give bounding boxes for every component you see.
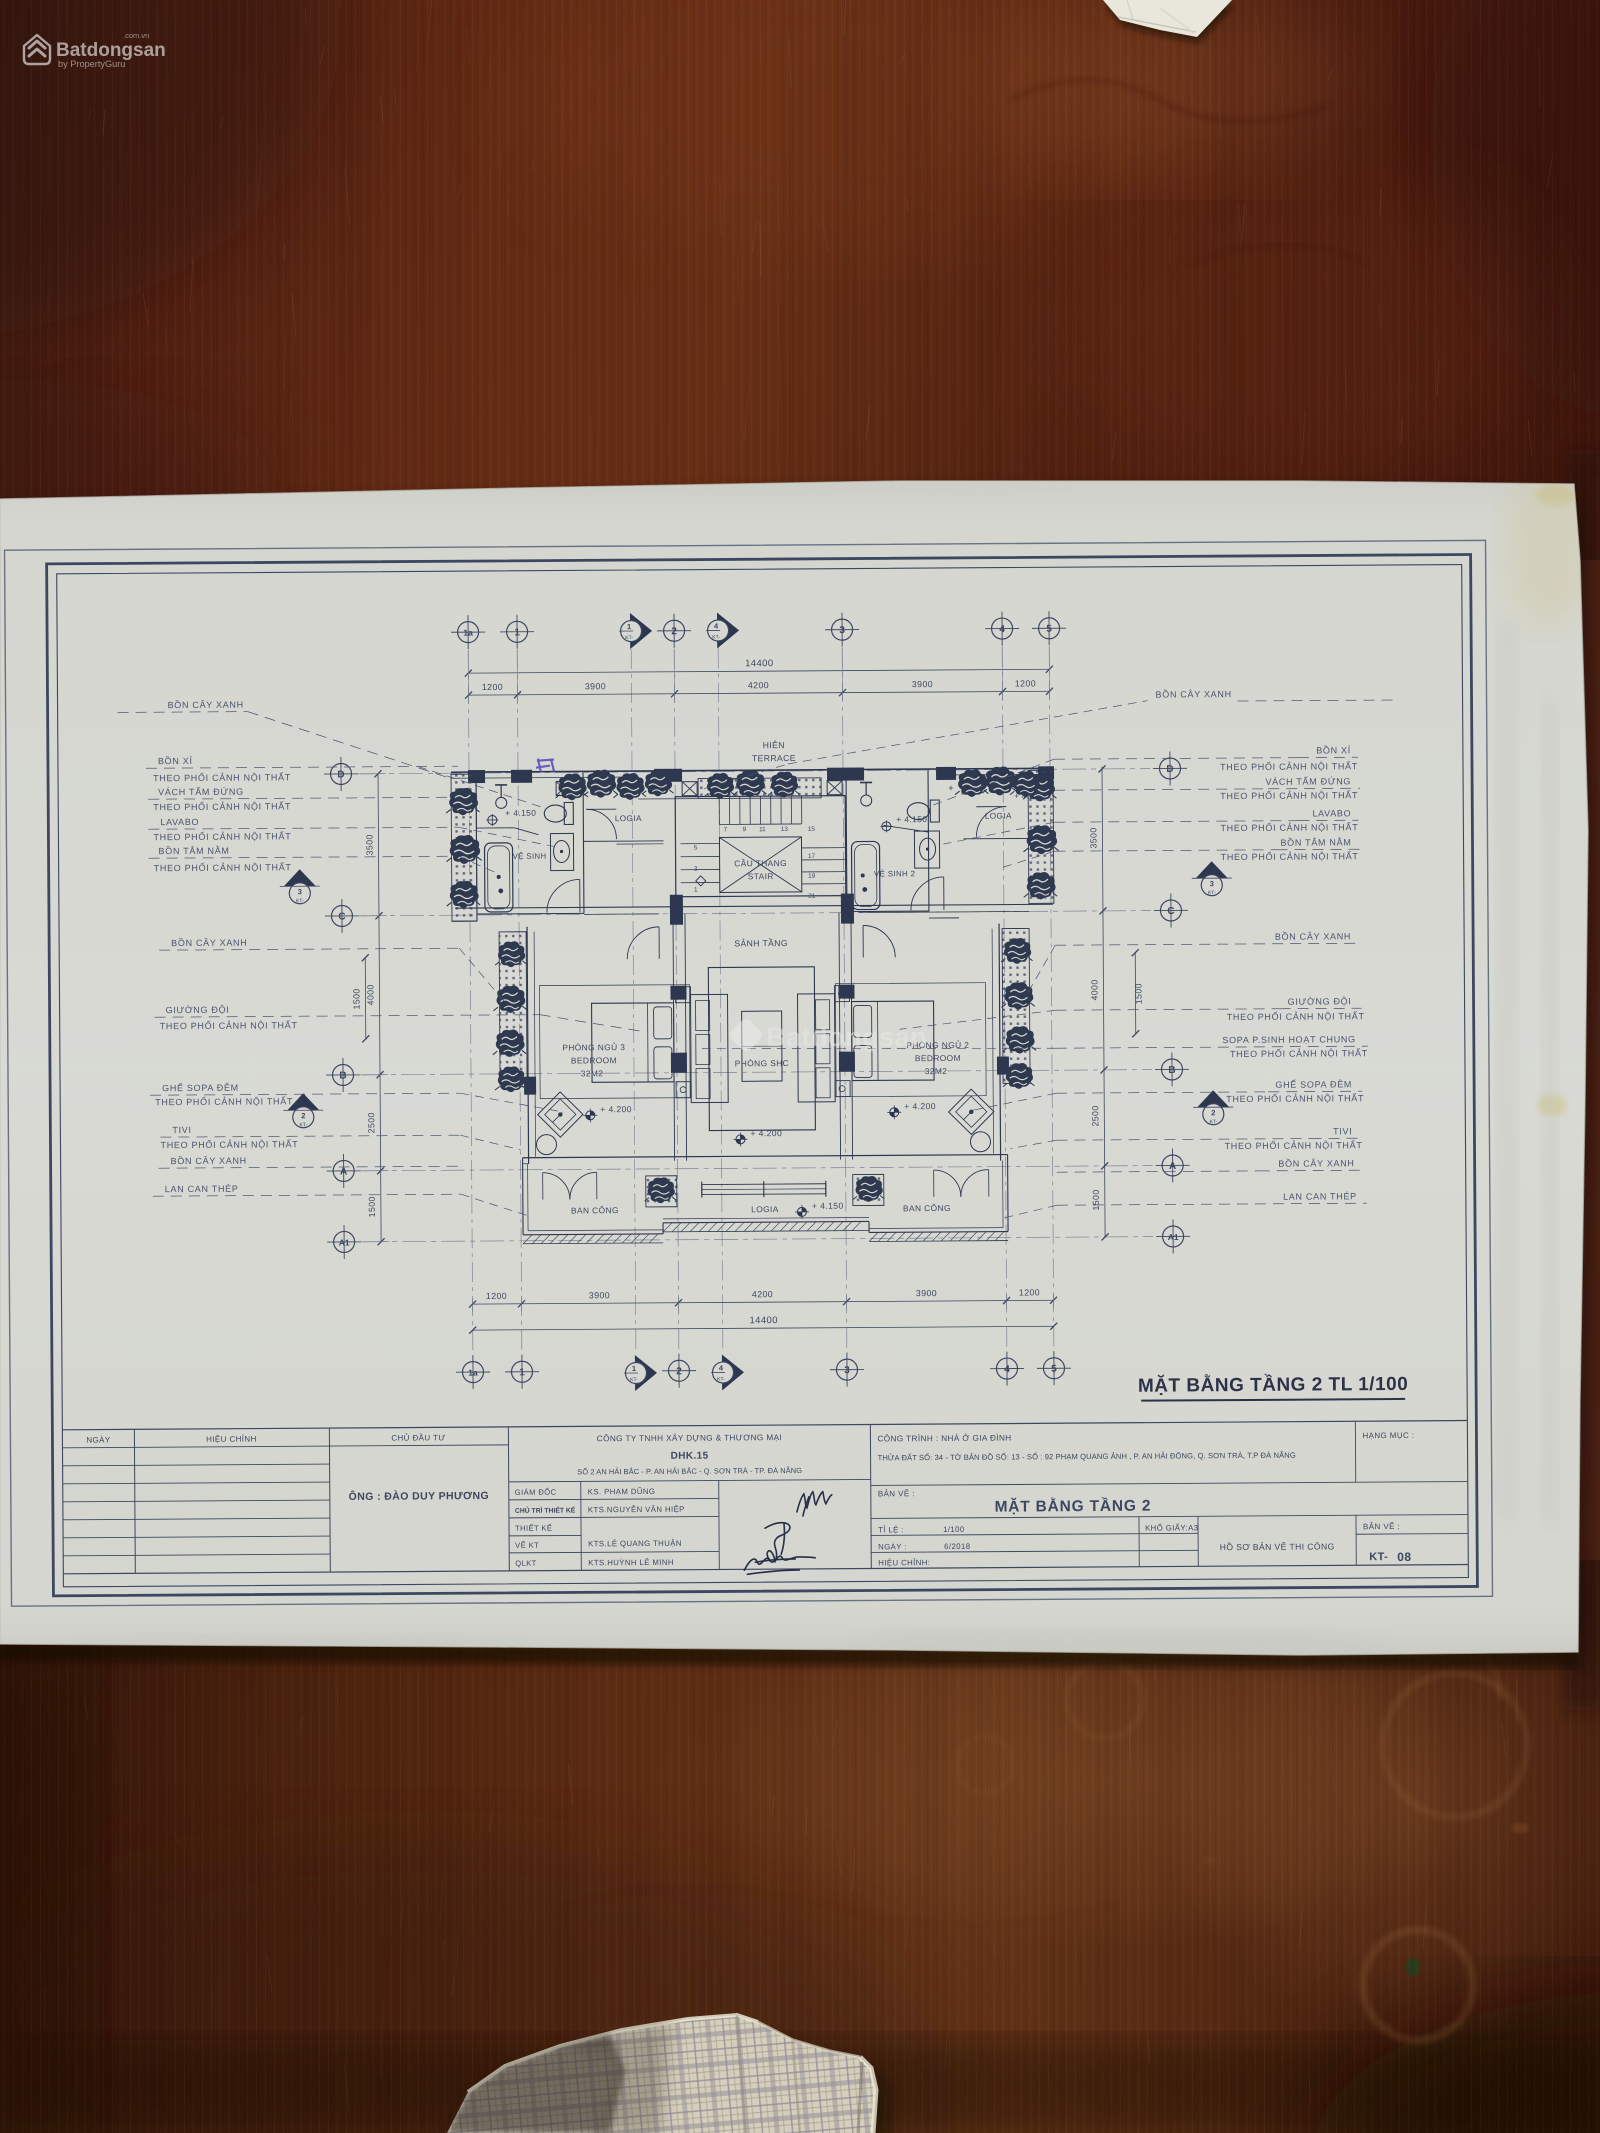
- svg-text:HỒ SƠ BẢN VẼ THI CÔNG: HỒ SƠ BẢN VẼ THI CÔNG: [1220, 1540, 1335, 1552]
- svg-text:14400: 14400: [749, 1315, 777, 1326]
- svg-text:BỒN TẮM NẰM: BỒN TẮM NẰM: [1280, 836, 1351, 847]
- svg-text:TIVI: TIVI: [1333, 1126, 1352, 1136]
- svg-text:KT-: KT-: [299, 1122, 307, 1128]
- svg-text:TERRACE: TERRACE: [752, 753, 796, 763]
- svg-text:5: 5: [1051, 1364, 1057, 1375]
- svg-text:4200: 4200: [752, 1289, 773, 1299]
- svg-text:NGÀY: NGÀY: [86, 1436, 111, 1445]
- svg-text:THEO PHỐI CẢNH NỘI THẤT: THEO PHỐI CẢNH NỘI THẤT: [1221, 850, 1359, 862]
- svg-text:3900: 3900: [912, 679, 933, 689]
- svg-text:08: 08: [1397, 1550, 1411, 1564]
- svg-text:1500: 1500: [367, 1196, 377, 1217]
- svg-text:1200: 1200: [1015, 678, 1036, 688]
- svg-text:THIẾT KẾ: THIẾT KẾ: [515, 1523, 552, 1533]
- svg-text:32M2: 32M2: [925, 1066, 948, 1076]
- svg-text:BỒN CÂY XANH: BỒN CÂY XANH: [171, 1155, 247, 1167]
- svg-text:HIỆU CHỈNH: HIỆU CHỈNH: [206, 1435, 257, 1444]
- svg-text:3500: 3500: [364, 834, 374, 855]
- svg-text:THEO PHỐI CẢNH NỘI THẤT: THEO PHỐI CẢNH NỘI THẤT: [153, 800, 291, 812]
- svg-text:1a: 1a: [463, 628, 473, 638]
- svg-text:KT-: KT-: [717, 1376, 725, 1382]
- svg-text:3: 3: [839, 625, 845, 636]
- svg-text:1200: 1200: [1019, 1287, 1040, 1297]
- svg-text:LOGIA: LOGIA: [615, 814, 642, 823]
- svg-text:1: 1: [627, 622, 631, 631]
- svg-text:4200: 4200: [748, 680, 769, 690]
- svg-text:KT-: KT-: [625, 635, 633, 641]
- svg-text:1500: 1500: [351, 988, 361, 1009]
- svg-text:VÁCH TẤM ĐỨNG: VÁCH TẤM ĐỨNG: [158, 787, 244, 798]
- svg-text:D: D: [337, 769, 344, 780]
- svg-text:A: A: [340, 1166, 347, 1177]
- svg-text:VỆ SINH 2: VỆ SINH 2: [874, 869, 915, 878]
- svg-text:+: +: [663, 785, 669, 795]
- svg-text:1: 1: [519, 1367, 525, 1378]
- svg-text:BỒN CÂY XANH: BỒN CÂY XANH: [1278, 1157, 1354, 1169]
- svg-text:THEO PHỐI CẢNH NỘI THẤT: THEO PHỐI CẢNH NỘI THẤT: [160, 1019, 298, 1031]
- svg-text:GHẾ SOPA ĐÊM: GHẾ SOPA ĐÊM: [1275, 1079, 1352, 1090]
- svg-text:Batdongsan: Batdongsan: [766, 1022, 927, 1052]
- svg-text:13: 13: [781, 826, 789, 833]
- svg-text:B: B: [339, 1070, 346, 1081]
- svg-text:1: 1: [632, 1364, 636, 1373]
- svg-text:HIỆU CHỈNH:: HIỆU CHỈNH:: [878, 1558, 930, 1567]
- svg-text:7: 7: [724, 826, 728, 833]
- svg-text:+ 4.200: + 4.200: [600, 1104, 632, 1114]
- svg-text:LAVABO: LAVABO: [160, 817, 199, 827]
- svg-text:KS. PHẠM DŨNG: KS. PHẠM DŨNG: [588, 1487, 656, 1496]
- svg-text:2: 2: [671, 626, 677, 637]
- svg-text:NGÀY :: NGÀY :: [878, 1542, 907, 1551]
- svg-text:BẢN VẼ :: BẢN VẼ :: [878, 1489, 915, 1498]
- svg-text:C: C: [1167, 906, 1174, 917]
- svg-text:15: 15: [808, 826, 816, 833]
- svg-text:B: B: [1168, 1065, 1175, 1076]
- svg-text:4: 4: [1004, 1364, 1010, 1375]
- svg-text:KT-: KT-: [1369, 1551, 1388, 1563]
- svg-text:ÔNG : ĐÀO DUY PHƯƠNG: ÔNG : ĐÀO DUY PHƯƠNG: [349, 1489, 489, 1503]
- svg-text:A1: A1: [1168, 1232, 1179, 1242]
- svg-text:VÁCH TẤM ĐỨNG: VÁCH TẤM ĐỨNG: [1265, 776, 1351, 787]
- svg-text:SỐ 2 AN HẢI BẮC - P. AN HẢI BẮ: SỐ 2 AN HẢI BẮC - P. AN HẢI BẮC - Q. SƠN…: [577, 1465, 802, 1476]
- svg-text:2: 2: [676, 1366, 682, 1377]
- svg-text:THEO PHỐI CẢNH NỘI THẤT: THEO PHỐI CẢNH NỘI THẤT: [153, 830, 291, 842]
- svg-text:4000: 4000: [365, 984, 375, 1005]
- svg-text:9: 9: [743, 826, 747, 833]
- svg-text:MẶT BẰNG TẦNG 2 TL 1/100: MẶT BẰNG TẦNG 2 TL 1/100: [1138, 1373, 1408, 1397]
- svg-text:CHỦ ĐẦU TƯ: CHỦ ĐẦU TƯ: [391, 1432, 445, 1442]
- svg-text:THEO PHỐI CẢNH NỘI THẤT: THEO PHỐI CẢNH NỘI THẤT: [153, 771, 291, 783]
- svg-text:A: A: [1169, 1161, 1176, 1172]
- svg-text:KTS.NGUYỄN VĂN HIỆP: KTS.NGUYỄN VĂN HIỆP: [588, 1505, 685, 1515]
- svg-text:2: 2: [1211, 1108, 1215, 1117]
- svg-text:THEO PHỐI CẢNH NỘI THẤT: THEO PHỐI CẢNH NỘI THẤT: [155, 1095, 293, 1107]
- svg-text:3900: 3900: [585, 681, 606, 691]
- svg-text:TỈ LỆ :: TỈ LỆ :: [878, 1525, 904, 1534]
- svg-text:2: 2: [301, 1111, 305, 1120]
- svg-text:BỒN TẮM NẰM: BỒN TẮM NẰM: [158, 845, 229, 856]
- svg-text:LAN CAN THÉP: LAN CAN THÉP: [165, 1184, 239, 1194]
- svg-text:3500: 3500: [1088, 827, 1098, 848]
- svg-text:32M2: 32M2: [581, 1068, 604, 1078]
- svg-text:TIVI: TIVI: [172, 1125, 191, 1135]
- svg-text:1/100: 1/100: [943, 1525, 965, 1534]
- svg-text:1: 1: [514, 627, 520, 638]
- svg-text:3: 3: [844, 1365, 850, 1376]
- svg-text:GIƯỜNG ĐỘI: GIƯỜNG ĐỘI: [166, 1005, 230, 1015]
- svg-text:KT-: KT-: [712, 634, 720, 640]
- svg-text:HIÊN: HIÊN: [763, 740, 785, 750]
- svg-text:STAIR: STAIR: [748, 871, 774, 881]
- svg-text:GIƯỜNG ĐỘI: GIƯỜNG ĐỘI: [1288, 996, 1352, 1006]
- svg-text:SẢNH TẦNG: SẢNH TẦNG: [734, 937, 788, 948]
- svg-text:BEDROOM: BEDROOM: [571, 1055, 617, 1065]
- svg-text:BỒN CÂY XANH: BỒN CÂY XANH: [1275, 930, 1351, 942]
- svg-text:VỆ SINH: VỆ SINH: [513, 852, 547, 861]
- svg-text:LOGIA: LOGIA: [751, 1204, 779, 1214]
- svg-text:1200: 1200: [486, 1291, 507, 1301]
- svg-text:3900: 3900: [916, 1288, 937, 1298]
- svg-text:BEDROOM: BEDROOM: [915, 1053, 961, 1063]
- svg-text:LAVABO: LAVABO: [1312, 808, 1351, 818]
- svg-text:3: 3: [1210, 879, 1214, 888]
- svg-text:D: D: [1166, 764, 1173, 775]
- svg-text:BỒN CÂY XANH: BỒN CÂY XANH: [168, 699, 244, 711]
- svg-text:BAN CÔNG: BAN CÔNG: [571, 1205, 619, 1215]
- svg-text:+ 4.150: + 4.150: [505, 808, 536, 818]
- svg-text:21: 21: [808, 893, 816, 900]
- svg-text:3: 3: [694, 866, 698, 873]
- svg-text:CÔNG TY TNHH XÂY DỰNG & THƯƠNG: CÔNG TY TNHH XÂY DỰNG & THƯƠNG MẠI: [597, 1432, 782, 1443]
- svg-text:BAN CÔNG: BAN CÔNG: [903, 1203, 951, 1213]
- svg-text:A1: A1: [339, 1237, 350, 1247]
- svg-text:11: 11: [759, 826, 766, 833]
- svg-text:1a: 1a: [468, 1368, 478, 1378]
- svg-text:CÔNG TRÌNH : NHÀ Ở GIA ĐÌNH: CÔNG TRÌNH : NHÀ Ở GIA ĐÌNH: [877, 1432, 1011, 1444]
- svg-text:THEO PHỐI CẢNH NỘI THẤT: THEO PHỐI CẢNH NỘI THẤT: [160, 1138, 298, 1150]
- svg-text:QLKT: QLKT: [515, 1559, 536, 1568]
- svg-text:4000: 4000: [1089, 979, 1099, 1000]
- svg-text:GHẾ SOPA ĐÊM: GHẾ SOPA ĐÊM: [162, 1083, 239, 1094]
- svg-text:BỒN XÍ: BỒN XÍ: [1316, 744, 1351, 755]
- svg-text:THEO PHỐI CẢNH NỘI THẤT: THEO PHỐI CẢNH NỘI THẤT: [1220, 789, 1358, 801]
- svg-text:KTS.LÊ QUANG THUẬN: KTS.LÊ QUANG THUẬN: [588, 1539, 682, 1549]
- svg-text:Batdongsan: Batdongsan: [56, 40, 166, 61]
- svg-text:19: 19: [808, 873, 816, 880]
- svg-text:HẠNG MỤC :: HẠNG MỤC :: [1362, 1431, 1414, 1440]
- svg-text:BỒN CÂY XANH: BỒN CÂY XANH: [171, 937, 247, 949]
- svg-text:BỒN CÂY XANH: BỒN CÂY XANH: [1155, 688, 1231, 700]
- svg-text:2500: 2500: [1090, 1105, 1100, 1126]
- svg-text:THEO PHỐI CẢNH NỘI THẤT: THEO PHỐI CẢNH NỘI THẤT: [154, 861, 292, 873]
- svg-text:KT-: KT-: [1208, 890, 1216, 896]
- svg-text:SOPA P.SINH HOẠT CHUNG: SOPA P.SINH HOẠT CHUNG: [1222, 1034, 1356, 1045]
- svg-text:1200: 1200: [482, 682, 503, 692]
- svg-text:+ 4.200: + 4.200: [904, 1101, 936, 1111]
- svg-text:PHÒNG SHC: PHÒNG SHC: [735, 1058, 789, 1068]
- svg-text:LOGIA: LOGIA: [985, 812, 1012, 821]
- svg-text:14400: 14400: [745, 658, 773, 669]
- svg-text:3900: 3900: [589, 1290, 610, 1300]
- svg-text:THEO PHỐI CẢNH NỘI THẤT: THEO PHỐI CẢNH NỘI THẤT: [1225, 1139, 1363, 1151]
- svg-text:4: 4: [999, 624, 1005, 635]
- svg-text:KHỔ GIẤY:A3: KHỔ GIẤY:A3: [1145, 1522, 1198, 1532]
- svg-text:1: 1: [694, 887, 698, 894]
- svg-text:by PropertyGuru: by PropertyGuru: [58, 59, 125, 69]
- svg-text:DHK.15: DHK.15: [671, 1451, 709, 1462]
- svg-text:C: C: [338, 911, 345, 922]
- svg-text:THEO PHỐI CẢNH NỘI THẤT: THEO PHỐI CẢNH NỘI THẤT: [1220, 760, 1358, 772]
- svg-text:5: 5: [1046, 624, 1052, 635]
- svg-text:CẦU THANG: CẦU THANG: [734, 858, 787, 868]
- svg-text:LAN CAN THÉP: LAN CAN THÉP: [1283, 1191, 1357, 1201]
- svg-text:KT-: KT-: [630, 1377, 638, 1383]
- svg-text:PHÒNG NGỦ 3: PHÒNG NGỦ 3: [562, 1041, 625, 1052]
- svg-text:+ 4.150: + 4.150: [812, 1201, 844, 1211]
- svg-text:KT-: KT-: [1209, 1119, 1217, 1125]
- svg-text:MẶT BẰNG TẦNG 2: MẶT BẰNG TẦNG 2: [995, 1497, 1152, 1516]
- svg-text:THEO PHỐI CẢNH NỘI THẤT: THEO PHỐI CẢNH NỘI THẤT: [1226, 1092, 1364, 1104]
- svg-text:+ 4.200: + 4.200: [750, 1128, 782, 1138]
- svg-text:BỒN XÍ: BỒN XÍ: [158, 755, 193, 766]
- svg-text:GIÁM ĐỐC: GIÁM ĐỐC: [515, 1487, 557, 1497]
- svg-text:1500: 1500: [1091, 1189, 1101, 1210]
- svg-text:1500: 1500: [1133, 983, 1143, 1004]
- svg-text:KT-: KT-: [296, 898, 304, 904]
- svg-text:THEO PHỐI CẢNH NỘI THẤT: THEO PHỐI CẢNH NỘI THẤT: [1227, 1010, 1365, 1022]
- svg-text:THEO PHỐI CẢNH NỘI THẤT: THEO PHỐI CẢNH NỘI THẤT: [1230, 1047, 1368, 1059]
- svg-text:BẢN VẼ :: BẢN VẼ :: [1363, 1522, 1400, 1531]
- svg-text:6/2018: 6/2018: [944, 1542, 970, 1551]
- svg-text:+: +: [948, 783, 954, 793]
- svg-text:2500: 2500: [366, 1112, 376, 1133]
- svg-text:5: 5: [694, 845, 698, 852]
- svg-text:.com.vn: .com.vn: [123, 31, 149, 40]
- svg-text:THEO PHỐI CẢNH NỘI THẤT: THEO PHỐI CẢNH NỘI THẤT: [1220, 821, 1358, 833]
- svg-text:KTS.HUỲNH LÊ MINH: KTS.HUỲNH LÊ MINH: [588, 1558, 674, 1568]
- svg-text:VẼ KT: VẼ KT: [515, 1541, 539, 1550]
- svg-text:3: 3: [298, 887, 302, 896]
- svg-text:17: 17: [808, 853, 816, 860]
